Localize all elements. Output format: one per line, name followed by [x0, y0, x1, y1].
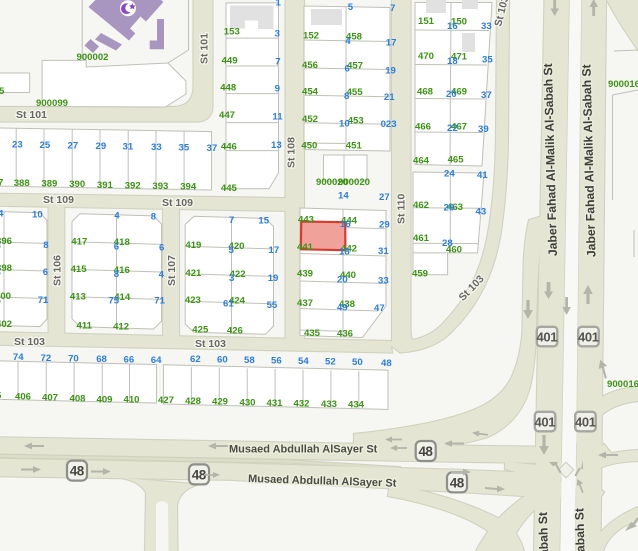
- svg-text:4: 4: [345, 36, 351, 47]
- svg-text:5: 5: [0, 86, 5, 97]
- svg-text:St 101: St 101: [199, 33, 211, 64]
- svg-text:18: 18: [447, 56, 458, 67]
- svg-text:74: 74: [13, 352, 24, 363]
- svg-text:20: 20: [337, 275, 348, 286]
- svg-text:023: 023: [381, 119, 397, 130]
- svg-text:407: 407: [42, 392, 58, 403]
- svg-text:436: 436: [337, 329, 353, 340]
- svg-text:72: 72: [41, 353, 52, 364]
- svg-text:25: 25: [40, 140, 51, 151]
- svg-text:33: 33: [481, 21, 492, 32]
- svg-text:50: 50: [352, 357, 363, 368]
- svg-text:6: 6: [43, 267, 48, 278]
- svg-text:432: 432: [294, 399, 310, 410]
- svg-text:17: 17: [269, 245, 280, 256]
- svg-text:St 108: St 108: [286, 137, 298, 168]
- svg-text:37: 37: [481, 90, 492, 101]
- svg-text:393: 393: [152, 181, 168, 192]
- svg-text:52: 52: [325, 357, 336, 368]
- svg-text:22: 22: [447, 123, 458, 134]
- svg-text:465: 465: [448, 155, 465, 166]
- svg-text:61: 61: [223, 299, 234, 310]
- svg-text:14: 14: [338, 191, 349, 202]
- svg-text:388: 388: [14, 178, 31, 189]
- svg-text:7: 7: [0, 178, 3, 189]
- svg-text:33: 33: [151, 142, 162, 153]
- svg-text:408: 408: [70, 394, 87, 405]
- svg-text:401: 401: [537, 329, 558, 344]
- svg-text:37: 37: [207, 143, 218, 154]
- svg-text:Musaed Abdullah AlSayer St: Musaed Abdullah AlSayer St: [229, 444, 378, 456]
- svg-text:St 110: St 110: [396, 193, 408, 224]
- svg-text:56: 56: [271, 356, 282, 367]
- svg-text:900016: 900016: [607, 379, 638, 390]
- svg-text:433: 433: [321, 399, 337, 410]
- svg-text:398: 398: [0, 263, 13, 274]
- svg-text:9: 9: [275, 83, 280, 94]
- svg-text:417: 417: [71, 237, 87, 248]
- svg-text:20: 20: [446, 89, 457, 100]
- svg-text:64: 64: [151, 355, 162, 366]
- svg-text:468: 468: [417, 87, 434, 98]
- svg-text:429: 429: [212, 397, 228, 408]
- svg-text:35: 35: [179, 143, 190, 154]
- svg-text:71: 71: [154, 295, 165, 306]
- svg-text:428: 428: [185, 396, 202, 407]
- svg-text:6: 6: [345, 64, 350, 75]
- svg-text:48: 48: [418, 444, 433, 459]
- svg-text:75: 75: [108, 296, 119, 307]
- svg-text:31: 31: [123, 142, 134, 153]
- svg-text:49: 49: [337, 303, 348, 314]
- svg-text:454: 454: [302, 87, 319, 98]
- svg-text:452: 452: [302, 114, 318, 125]
- svg-text:460: 460: [446, 245, 462, 256]
- svg-text:35: 35: [482, 55, 493, 66]
- svg-text:16: 16: [340, 219, 351, 230]
- svg-text:16: 16: [447, 21, 458, 32]
- svg-text:431: 431: [267, 398, 284, 409]
- svg-text:St 106: St 106: [52, 255, 64, 286]
- svg-text:441: 441: [297, 242, 314, 253]
- svg-text:St 109: St 109: [162, 197, 193, 209]
- svg-text:8: 8: [43, 240, 49, 251]
- svg-text:464: 464: [413, 156, 430, 167]
- svg-text:8: 8: [151, 212, 157, 223]
- svg-text:402: 402: [0, 319, 12, 330]
- svg-text:462: 462: [413, 200, 429, 211]
- svg-text:27: 27: [379, 192, 390, 203]
- svg-text:466: 466: [415, 122, 431, 133]
- svg-text:423: 423: [185, 295, 201, 306]
- svg-text:10: 10: [339, 119, 350, 130]
- svg-text:413: 413: [70, 291, 86, 302]
- svg-text:26: 26: [444, 203, 455, 214]
- svg-text:29: 29: [96, 141, 107, 152]
- svg-text:459: 459: [412, 269, 428, 280]
- svg-text:7: 7: [229, 215, 234, 226]
- svg-text:390: 390: [69, 179, 85, 190]
- svg-text:68: 68: [96, 354, 107, 365]
- svg-text:33: 33: [378, 275, 389, 286]
- svg-text:8: 8: [114, 269, 120, 280]
- svg-text:4: 4: [159, 270, 165, 281]
- svg-text:447: 447: [219, 110, 235, 121]
- svg-text:419: 419: [185, 240, 201, 251]
- svg-text:411: 411: [77, 320, 93, 331]
- svg-text:St 103: St 103: [14, 336, 45, 348]
- svg-text:47: 47: [374, 303, 385, 314]
- svg-text:19: 19: [385, 66, 396, 77]
- svg-text:27: 27: [68, 141, 79, 152]
- svg-text:St 103: St 103: [195, 338, 226, 350]
- svg-text:446: 446: [221, 142, 237, 153]
- svg-text:48: 48: [381, 358, 392, 369]
- svg-text:15: 15: [258, 216, 269, 227]
- svg-text:410: 410: [124, 395, 140, 406]
- svg-text:39: 39: [478, 124, 489, 135]
- svg-text:449: 449: [222, 56, 238, 67]
- svg-text:23: 23: [12, 140, 23, 151]
- svg-text:70: 70: [68, 353, 79, 364]
- svg-text:394: 394: [180, 182, 197, 193]
- svg-text:4: 4: [114, 211, 120, 222]
- svg-text:31: 31: [378, 246, 389, 257]
- svg-text:448: 448: [220, 83, 237, 94]
- svg-text:18: 18: [339, 247, 350, 258]
- svg-text:900016: 900016: [608, 79, 638, 90]
- svg-text:900020: 900020: [338, 177, 370, 188]
- svg-text:13: 13: [271, 140, 282, 151]
- svg-text:6: 6: [159, 242, 164, 253]
- svg-text:6: 6: [0, 268, 1, 279]
- svg-text:55: 55: [267, 300, 278, 311]
- svg-text:430: 430: [240, 398, 256, 409]
- svg-text:445: 445: [221, 183, 238, 194]
- svg-text:24: 24: [444, 169, 455, 180]
- svg-text:St 109: St 109: [43, 194, 74, 206]
- svg-text:6: 6: [114, 241, 119, 252]
- svg-text:152: 152: [303, 30, 319, 41]
- svg-text:abah St: abah St: [536, 512, 551, 551]
- svg-text:153: 153: [224, 27, 240, 38]
- svg-text:439: 439: [297, 269, 313, 280]
- svg-text:421: 421: [185, 268, 202, 279]
- svg-text:401: 401: [575, 414, 596, 429]
- svg-text:5: 5: [229, 245, 235, 256]
- svg-text:1: 1: [276, 0, 282, 9]
- svg-text:461: 461: [413, 233, 430, 244]
- svg-text:60: 60: [217, 355, 228, 366]
- svg-text:435: 435: [304, 328, 321, 339]
- svg-text:5: 5: [348, 2, 354, 13]
- svg-text:456: 456: [302, 60, 318, 71]
- svg-text:48: 48: [70, 464, 85, 479]
- svg-text:391: 391: [97, 180, 114, 191]
- svg-text:392: 392: [125, 180, 141, 191]
- svg-text:401: 401: [535, 414, 556, 429]
- svg-text:19: 19: [268, 273, 279, 284]
- svg-text:58: 58: [244, 355, 255, 366]
- svg-text:7: 7: [275, 57, 280, 68]
- svg-text:453: 453: [348, 116, 364, 127]
- svg-text:437: 437: [297, 298, 313, 309]
- svg-text:3: 3: [229, 273, 234, 284]
- svg-text:151: 151: [418, 16, 435, 27]
- svg-text:7: 7: [390, 3, 395, 14]
- svg-text:396: 396: [0, 236, 12, 247]
- svg-text:66: 66: [124, 354, 135, 365]
- svg-text:71: 71: [38, 295, 49, 306]
- svg-text:17: 17: [386, 38, 397, 49]
- svg-text:8: 8: [344, 91, 350, 102]
- svg-text:St 101: St 101: [16, 109, 47, 121]
- svg-text:451: 451: [346, 140, 363, 151]
- svg-text:389: 389: [41, 179, 57, 190]
- svg-text:443: 443: [298, 215, 314, 226]
- svg-text:54: 54: [298, 356, 309, 367]
- svg-text:409: 409: [97, 394, 113, 405]
- svg-text:48: 48: [450, 475, 465, 490]
- svg-text:62: 62: [190, 354, 201, 365]
- svg-text:401: 401: [578, 329, 599, 344]
- svg-text:abah St: abah St: [572, 508, 587, 551]
- svg-text:434: 434: [348, 400, 365, 411]
- svg-text:29: 29: [379, 220, 390, 231]
- svg-text:427: 427: [158, 395, 174, 406]
- svg-text:426: 426: [227, 325, 243, 336]
- svg-text:425: 425: [192, 325, 209, 336]
- svg-text:St 107: St 107: [166, 255, 178, 286]
- svg-text:406: 406: [15, 392, 31, 403]
- svg-text:415: 415: [71, 264, 88, 275]
- svg-text:21: 21: [384, 92, 395, 103]
- svg-text:900099: 900099: [36, 98, 68, 109]
- svg-text:450: 450: [301, 140, 317, 151]
- svg-text:43: 43: [476, 207, 487, 218]
- svg-text:11: 11: [272, 112, 283, 123]
- svg-text:412: 412: [113, 322, 129, 333]
- svg-text:10: 10: [32, 210, 43, 221]
- svg-text:41: 41: [477, 170, 488, 181]
- svg-text:900002: 900002: [77, 52, 109, 63]
- svg-text:470: 470: [418, 51, 434, 62]
- svg-text:3: 3: [275, 28, 280, 39]
- svg-text:400: 400: [0, 291, 11, 302]
